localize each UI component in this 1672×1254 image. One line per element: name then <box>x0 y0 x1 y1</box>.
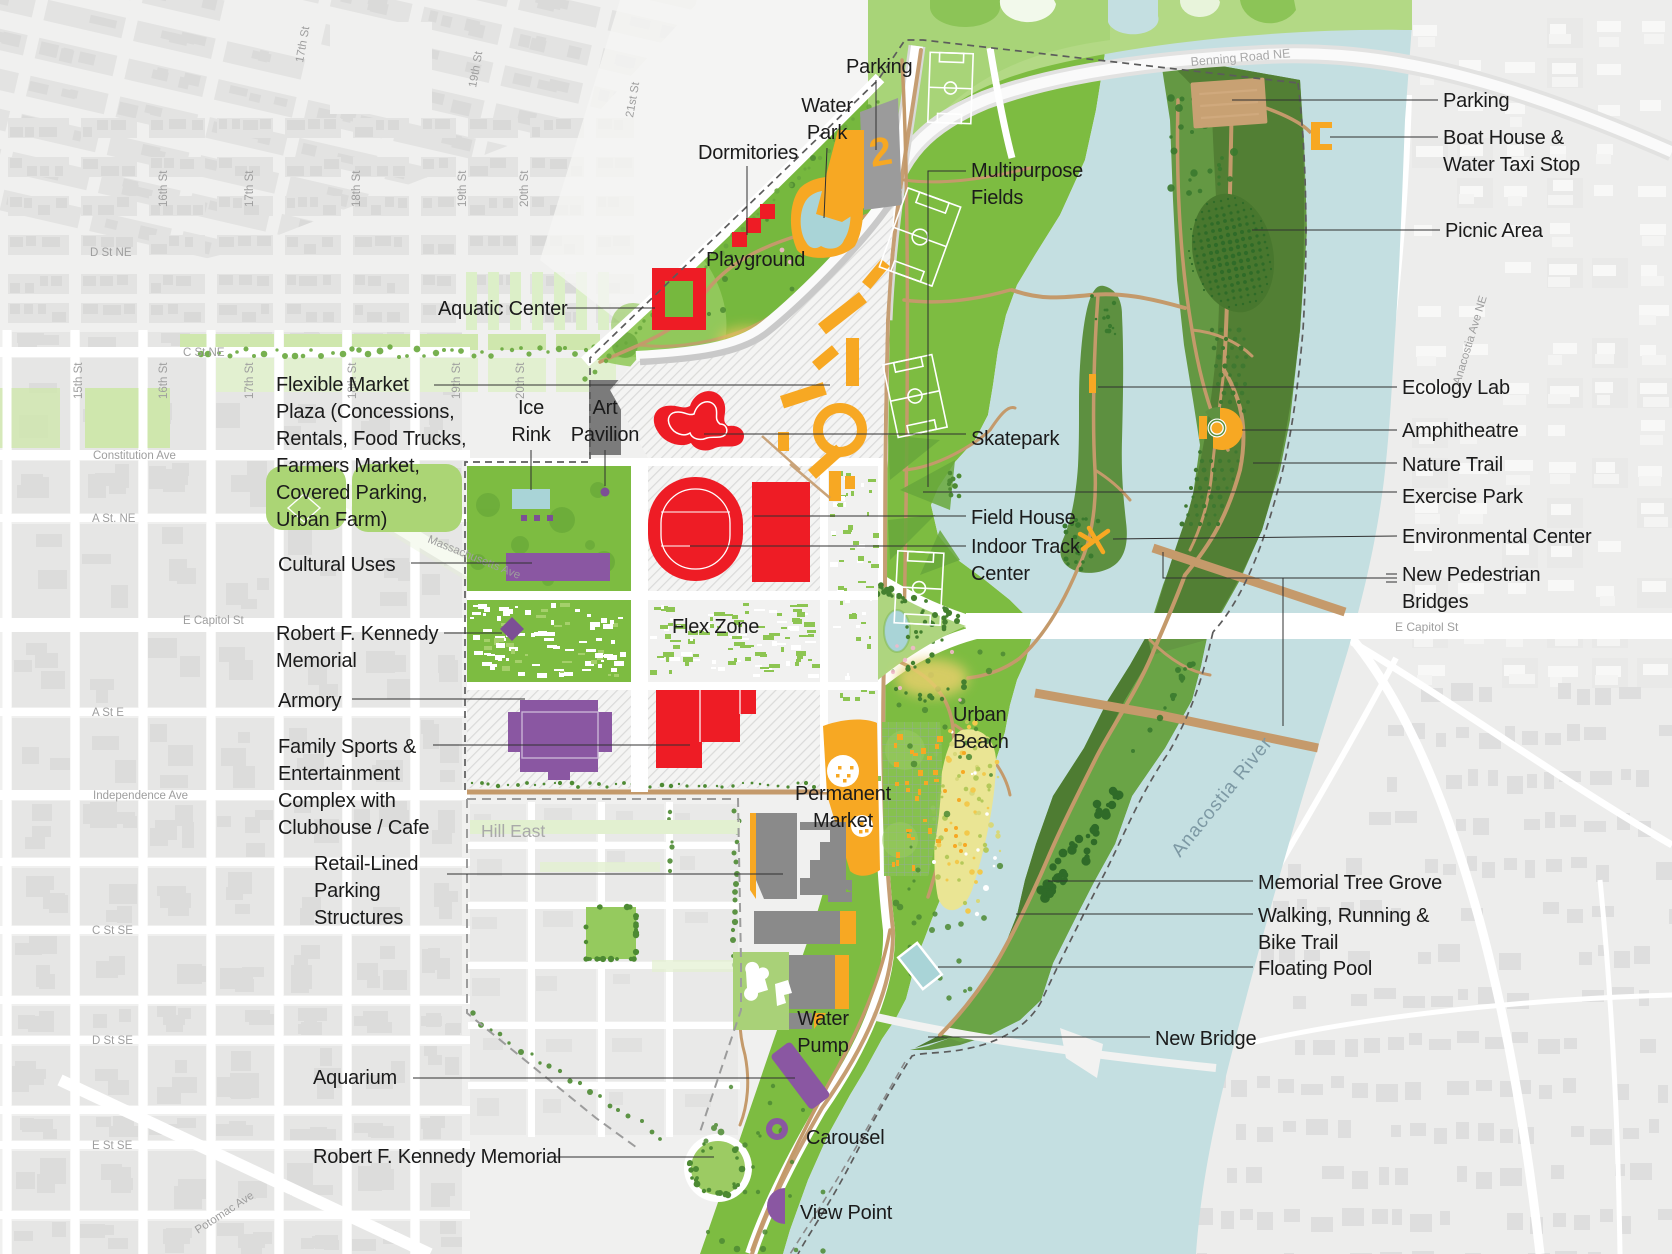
svg-text:20th St: 20th St <box>519 170 531 207</box>
svg-text:Independence Ave: Independence Ave <box>93 790 188 802</box>
svg-text:Field House: Field House <box>971 507 1076 529</box>
svg-text:16th St: 16th St <box>158 362 170 399</box>
svg-text:Robert F. Kennedy Memorial: Robert F. Kennedy Memorial <box>313 1146 561 1168</box>
svg-text:A St. NE: A St. NE <box>92 513 136 525</box>
svg-text:D St NE: D St NE <box>90 247 132 259</box>
svg-text:Cultural Uses: Cultural Uses <box>278 554 396 576</box>
svg-text:Parking: Parking <box>846 56 912 78</box>
svg-text:Floating Pool: Floating Pool <box>1258 958 1372 980</box>
svg-text:Aquatic Center: Aquatic Center <box>438 298 568 320</box>
svg-text:19th St: 19th St <box>457 170 469 207</box>
svg-text:Picnic Area: Picnic Area <box>1445 220 1544 242</box>
svg-text:Carousel: Carousel <box>806 1127 884 1149</box>
svg-text:16th St: 16th St <box>158 170 170 207</box>
svg-text:Flex Zone: Flex Zone <box>672 616 759 638</box>
svg-text:A St E: A St E <box>92 707 124 719</box>
svg-text:E Capitol St: E Capitol St <box>183 615 245 627</box>
svg-text:17th St: 17th St <box>244 362 256 399</box>
svg-text:New Bridge: New Bridge <box>1155 1028 1256 1050</box>
svg-text:Armory: Armory <box>278 690 341 712</box>
svg-text:Aquarium: Aquarium <box>313 1067 397 1089</box>
svg-text:19th St: 19th St <box>451 362 463 399</box>
svg-text:C St NE: C St NE <box>183 347 225 359</box>
svg-text:Playground: Playground <box>706 249 805 271</box>
svg-text:D St SE: D St SE <box>92 1035 133 1047</box>
svg-text:Amphitheatre: Amphitheatre <box>1402 420 1519 442</box>
svg-text:Dormitories: Dormitories <box>698 142 798 164</box>
svg-text:Ecology Lab: Ecology Lab <box>1402 377 1510 399</box>
svg-text:Constitution Ave: Constitution Ave <box>93 450 176 462</box>
svg-text:E St SE: E St SE <box>92 1140 133 1152</box>
svg-text:18th St: 18th St <box>351 170 363 207</box>
svg-text:20th St: 20th St <box>515 362 527 399</box>
svg-text:Memorial Tree Grove: Memorial Tree Grove <box>1258 872 1442 894</box>
svg-text:E Capitol St: E Capitol St <box>1395 620 1459 634</box>
svg-text:17th St: 17th St <box>244 170 256 207</box>
svg-text:Parking: Parking <box>1443 90 1509 112</box>
svg-text:Nature Trail: Nature Trail <box>1402 454 1503 476</box>
svg-text:View Point: View Point <box>800 1202 893 1224</box>
svg-text:Exercise Park: Exercise Park <box>1402 486 1524 508</box>
svg-text:C St SE: C St SE <box>92 925 133 937</box>
svg-text:15th St: 15th St <box>73 362 85 399</box>
svg-text:Skatepark: Skatepark <box>971 428 1060 450</box>
svg-text:Environmental Center: Environmental Center <box>1402 526 1592 548</box>
svg-text:Hill East: Hill East <box>481 821 545 841</box>
